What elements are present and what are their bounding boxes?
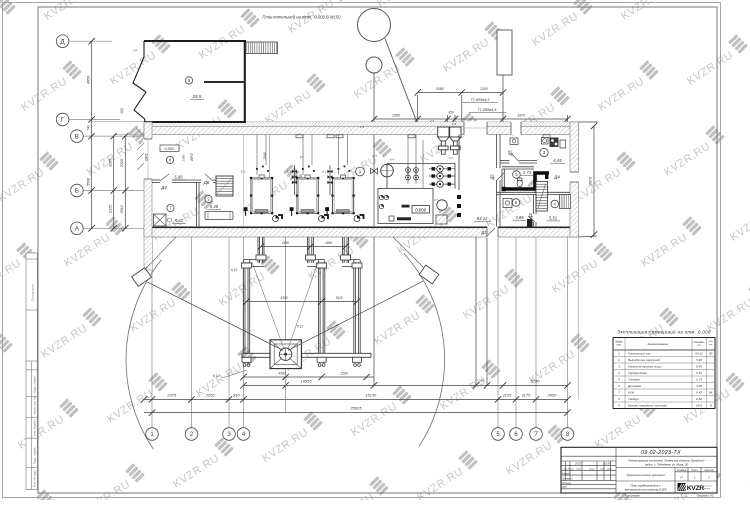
- svg-text:Кат.: Кат.: [709, 341, 714, 343]
- svg-text:энергия: энергия: [702, 488, 711, 490]
- svg-text:К 12: К 12: [297, 325, 304, 329]
- svg-text:3,85: 3,85: [696, 384, 702, 388]
- svg-text:В: В: [710, 404, 712, 408]
- svg-text:28,5: 28,5: [695, 404, 702, 408]
- svg-text:Формат А3: Формат А3: [697, 494, 714, 498]
- svg-text:25025: 25025: [349, 406, 362, 411]
- svg-text:пом.: пом.: [617, 344, 622, 347]
- svg-text:2260: 2260: [339, 371, 347, 375]
- svg-text:560: 560: [479, 378, 484, 382]
- svg-text:Инв. № подл.: Инв. № подл.: [33, 469, 37, 487]
- svg-text:6,86: 6,86: [174, 175, 183, 180]
- svg-text:Дата: Дата: [606, 468, 613, 470]
- svg-text:09.02-2023-ТХ: 09.02-2023-ТХ: [641, 450, 681, 456]
- svg-text:м²: м²: [698, 344, 701, 347]
- svg-text:94,11: 94,11: [477, 216, 488, 221]
- svg-text:К 5: К 5: [373, 154, 377, 158]
- svg-text:5: 5: [618, 378, 620, 382]
- svg-text:19955: 19955: [300, 378, 312, 383]
- svg-text:8: 8: [618, 397, 620, 401]
- svg-text:Наименование: Наименование: [648, 342, 669, 346]
- svg-text:1970: 1970: [517, 113, 525, 117]
- svg-text:2,73: 2,73: [522, 170, 532, 175]
- svg-text:тепловая: тепловая: [702, 485, 712, 487]
- svg-text:2335: 2335: [109, 205, 113, 214]
- svg-text:450: 450: [448, 111, 454, 115]
- svg-text:2580: 2580: [435, 87, 444, 91]
- svg-text:4390: 4390: [280, 296, 287, 300]
- svg-text:5590: 5590: [87, 178, 91, 186]
- svg-text:К 3: К 3: [360, 125, 364, 129]
- svg-text:3: 3: [543, 150, 546, 155]
- svg-text:Выработка пароснаб.: Выработка пароснаб.: [628, 358, 660, 362]
- svg-text:6,86: 6,86: [696, 397, 702, 401]
- svg-text:2300: 2300: [182, 154, 186, 162]
- svg-text:Реконструкция котельной, Тюмен: Реконструкция котельной, Тюменская облас…: [629, 459, 705, 463]
- svg-text:Копировал: Копировал: [625, 494, 640, 498]
- svg-text:Комната приема пищи: Комната приема пищи: [628, 365, 662, 369]
- svg-text:Экспликация помещений на от: Экспликация помещений на отм. 0.000: [617, 330, 711, 335]
- svg-text:К 1: К 1: [287, 170, 292, 174]
- svg-text:Согласовано: Согласовано: [31, 284, 35, 301]
- svg-text:Д: Д: [61, 39, 65, 45]
- svg-text:В4: В4: [709, 391, 713, 395]
- svg-text:К 2: К 2: [300, 155, 304, 159]
- svg-text:9: 9: [618, 404, 620, 408]
- svg-text:К 1: К 1: [322, 170, 327, 174]
- svg-text:2: 2: [707, 475, 710, 479]
- svg-text:К 8: К 8: [430, 119, 434, 123]
- svg-text:К 10: К 10: [231, 268, 238, 272]
- svg-text:К 12: К 12: [213, 374, 220, 378]
- svg-text:Д3: Д3: [528, 213, 533, 220]
- svg-text:ВР2: ВР2: [189, 152, 194, 160]
- svg-text:К 4: К 4: [390, 158, 394, 162]
- svg-text:К 2: К 2: [449, 156, 453, 160]
- svg-text:0.000: 0.000: [415, 207, 427, 212]
- svg-text:5,42: 5,42: [696, 391, 702, 395]
- svg-text:№док.: №док.: [589, 467, 595, 470]
- svg-text:Подп. и дата: Подп. и дата: [33, 376, 37, 393]
- svg-text:3,85: 3,85: [515, 215, 524, 220]
- svg-text:Т2 Ø59х4,5: Т2 Ø59х4,5: [471, 98, 490, 102]
- svg-text:2050: 2050: [547, 392, 558, 397]
- svg-text:3: 3: [618, 365, 620, 369]
- svg-text:5,51: 5,51: [549, 216, 557, 221]
- svg-text:Д4: Д4: [160, 185, 167, 190]
- svg-text:1: 1: [618, 352, 620, 356]
- svg-text:0,000: 0,000: [164, 146, 175, 151]
- svg-text:6: 6: [618, 384, 620, 388]
- svg-text:1135: 1135: [503, 392, 512, 397]
- svg-text:5,48: 5,48: [210, 204, 219, 209]
- svg-text:5,48: 5,48: [696, 358, 702, 362]
- svg-text:Лист: Лист: [575, 468, 581, 470]
- svg-text:Д2: Д2: [490, 174, 495, 181]
- svg-text:2540: 2540: [263, 152, 267, 160]
- svg-text:1: 1: [359, 169, 362, 174]
- svg-text:5,51: 5,51: [696, 371, 702, 375]
- svg-text:автоматики на отметку 0,000: автоматики на отметку 0,000: [625, 487, 667, 491]
- svg-text:Бункер твердого топлива: Бункер твердого топлива: [628, 404, 667, 408]
- svg-text:6670: 6670: [589, 177, 593, 185]
- svg-text:Б: Б: [75, 189, 79, 195]
- svg-text:1175: 1175: [522, 392, 531, 397]
- svg-text:3510: 3510: [120, 206, 124, 214]
- svg-text:Взам. инв. №: Взам. инв. №: [33, 397, 37, 414]
- svg-text:Душевая: Душевая: [627, 384, 641, 388]
- svg-text:4390: 4390: [278, 371, 285, 375]
- svg-text:Т1 Ø89х4,5: Т1 Ø89х4,5: [478, 108, 497, 112]
- svg-text:Проверил: Проверил: [562, 478, 573, 480]
- svg-text:В: В: [75, 134, 79, 140]
- svg-text:2: 2: [617, 358, 620, 362]
- svg-text:2375: 2375: [166, 392, 177, 397]
- svg-text:Тамбур: Тамбур: [628, 397, 639, 401]
- svg-text:2320: 2320: [120, 159, 124, 168]
- svg-text:25.02: 25.02: [574, 464, 581, 466]
- svg-text:Д6: Д6: [203, 180, 210, 185]
- svg-text:Стадия: Стадия: [677, 469, 687, 472]
- svg-text:5,42: 5,42: [175, 218, 184, 223]
- svg-text:В3: В3: [709, 352, 713, 356]
- svg-text:К 9: К 9: [452, 122, 456, 126]
- svg-text:Инв. № дубл.: Инв. № дубл.: [33, 418, 37, 436]
- svg-text:Санузел: Санузел: [628, 378, 640, 382]
- svg-text:10.06: 10.06: [604, 464, 610, 466]
- svg-text:Д5: Д5: [508, 150, 513, 157]
- svg-text:Р: Р: [680, 475, 682, 479]
- svg-text:3255: 3255: [109, 159, 113, 167]
- svg-text:910: 910: [233, 392, 240, 397]
- svg-text:Подп. и дата: Подп. и дата: [33, 447, 37, 464]
- svg-text:район, с. Победевка, ул. Мира,: район, с. Победевка, ул. Мира, 1Б: [644, 462, 688, 466]
- svg-text:8,45: 8,45: [696, 365, 702, 369]
- svg-text:КУИ: КУИ: [628, 391, 635, 395]
- svg-text:28,5: 28,5: [192, 94, 202, 99]
- svg-text:2250: 2250: [205, 392, 216, 397]
- svg-text:Разраб.: Разраб.: [562, 473, 571, 475]
- svg-text:Д4: Д4: [553, 175, 560, 180]
- svg-text:5290: 5290: [531, 378, 541, 383]
- svg-text:740: 740: [87, 125, 91, 131]
- svg-text:Гардеробная: Гардеробная: [628, 371, 647, 375]
- svg-text:Д1: Д1: [480, 230, 486, 235]
- svg-text:к.в: к.в: [133, 48, 137, 52]
- svg-text:А: А: [75, 226, 79, 232]
- svg-text:4950: 4950: [87, 76, 91, 84]
- svg-text:84,11: 84,11: [695, 352, 703, 356]
- svg-text:Н.контр.: Н.контр.: [562, 483, 572, 485]
- svg-text:4: 4: [618, 371, 620, 375]
- svg-text:пом.: пом.: [709, 344, 714, 346]
- svg-text:Листов: Листов: [703, 469, 714, 472]
- svg-text:15130: 15130: [365, 392, 377, 397]
- svg-text:1910: 1910: [335, 296, 342, 300]
- svg-text:2200: 2200: [479, 87, 488, 91]
- svg-text:К 1: К 1: [241, 170, 246, 174]
- svg-text:2150: 2150: [281, 241, 289, 245]
- svg-text:2,73: 2,73: [695, 378, 702, 382]
- svg-text:6,45: 6,45: [553, 158, 562, 163]
- svg-text:7: 7: [618, 391, 620, 395]
- svg-text:Технологические решения: Технологические решения: [626, 473, 665, 477]
- svg-text:План котельной на отм. -0,000: План котельной на отм. -0,000 В М150.: [262, 14, 341, 19]
- svg-text:2585: 2585: [391, 113, 400, 117]
- svg-text:ВР1: ВР1: [144, 153, 149, 161]
- svg-text:Подп.: Подп.: [600, 467, 606, 470]
- svg-text:ГИП: ГИП: [562, 487, 567, 489]
- svg-text:Котельный зал: Котельный зал: [628, 352, 651, 356]
- svg-text:1660: 1660: [325, 241, 332, 245]
- svg-text:200: 200: [120, 108, 124, 115]
- svg-text:Кол.уч.: Кол.уч.: [568, 468, 575, 470]
- svg-text:Лист: Лист: [690, 469, 697, 472]
